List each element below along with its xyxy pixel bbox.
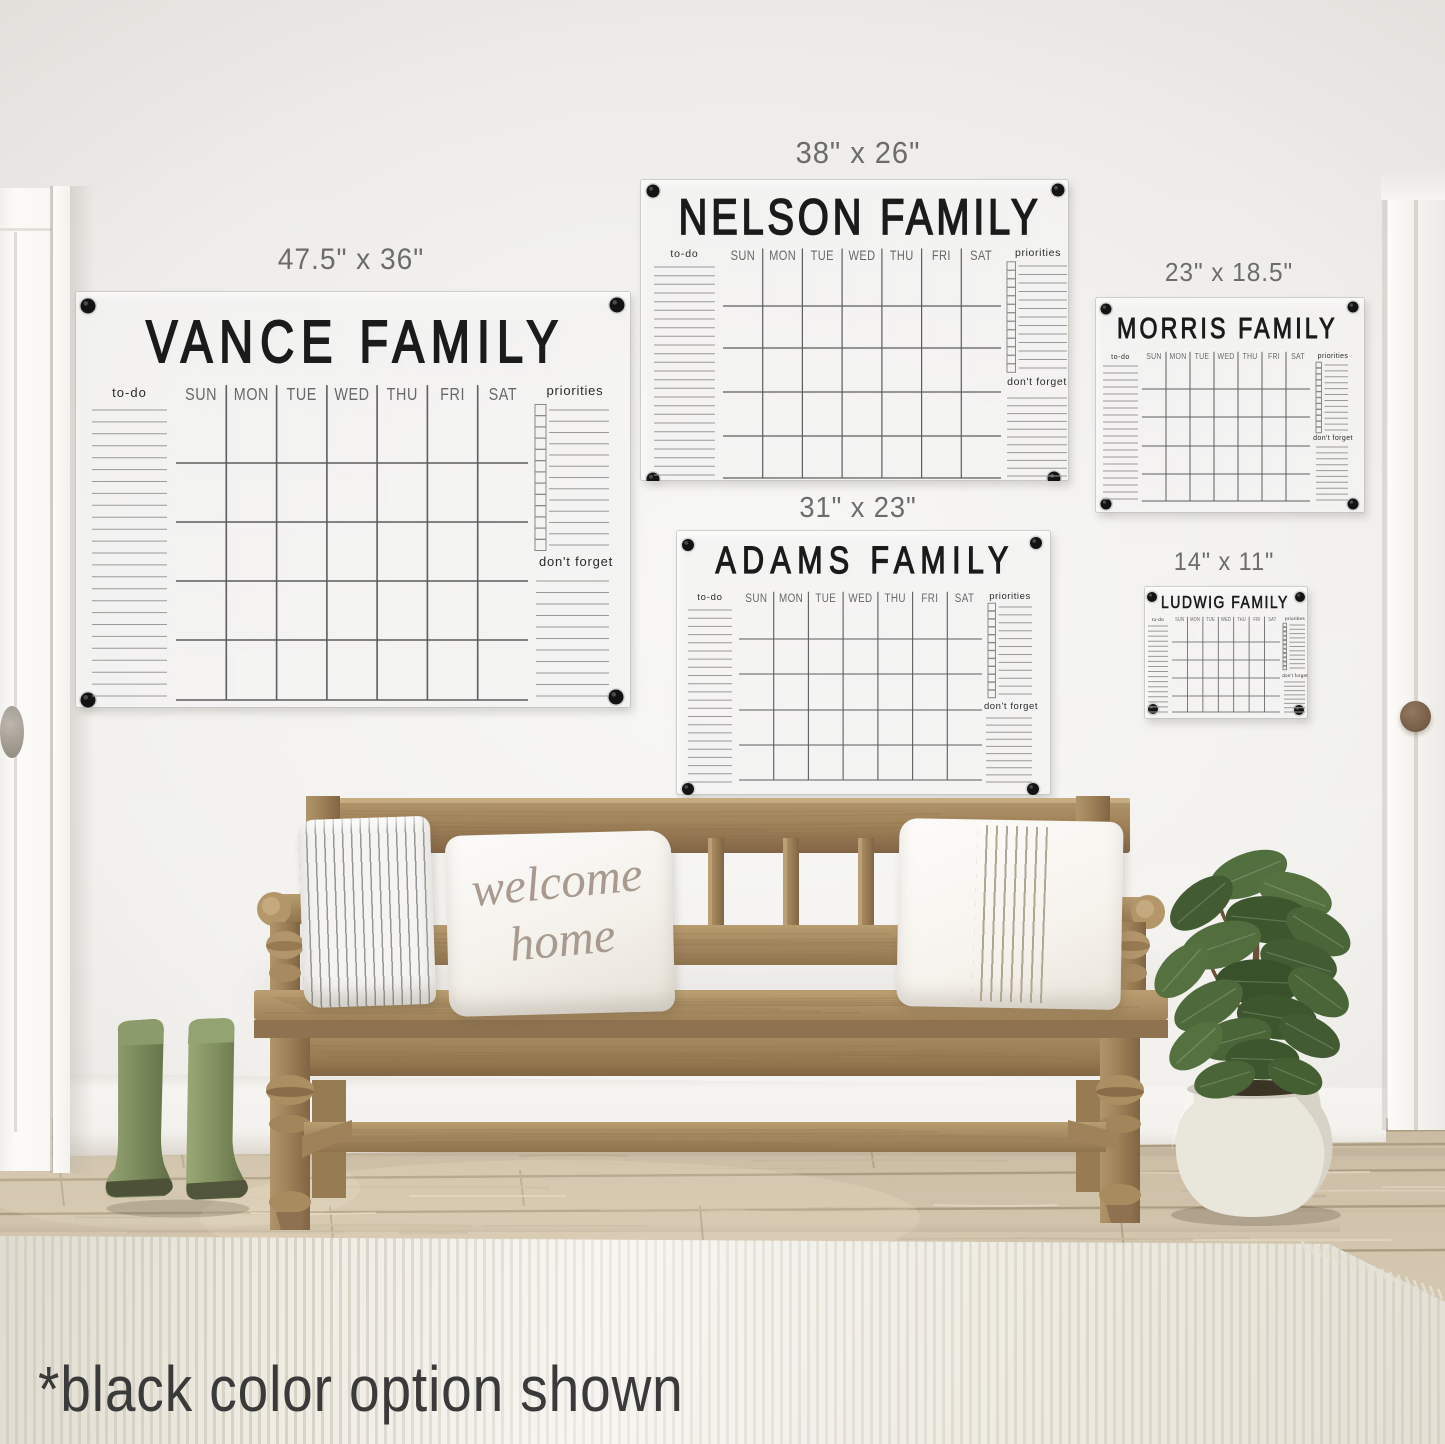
svg-text:priorities: priorities <box>1285 616 1305 621</box>
svg-text:don't forget: don't forget <box>539 554 613 569</box>
svg-text:SUN: SUN <box>731 248 756 263</box>
svg-text:SUN: SUN <box>1146 351 1161 361</box>
svg-text:THU: THU <box>890 248 914 263</box>
svg-text:don't forget: don't forget <box>1313 435 1353 442</box>
svg-text:NELSON FAMILY: NELSON FAMILY <box>679 189 1038 245</box>
svg-text:to-do: to-do <box>1111 354 1130 361</box>
svg-text:SAT: SAT <box>489 386 518 405</box>
svg-text:MON: MON <box>234 386 269 405</box>
svg-text:WED: WED <box>1218 351 1235 361</box>
svg-text:WED: WED <box>334 386 369 405</box>
svg-text:TUE: TUE <box>815 592 836 605</box>
svg-text:TUE: TUE <box>1195 351 1210 361</box>
svg-text:TUE: TUE <box>811 248 834 263</box>
svg-text:don't forget: don't forget <box>1007 376 1067 388</box>
svg-text:FRI: FRI <box>1268 351 1280 361</box>
svg-text:SUN: SUN <box>745 592 767 605</box>
svg-text:THU: THU <box>1237 617 1246 622</box>
svg-text:to-do: to-do <box>112 385 147 400</box>
svg-text:priorities: priorities <box>989 591 1031 602</box>
svg-text:MON: MON <box>1190 617 1200 622</box>
svg-text:FRI: FRI <box>1253 617 1260 622</box>
svg-text:SAT: SAT <box>970 248 992 263</box>
svg-text:THU: THU <box>884 592 905 605</box>
svg-text:to-do: to-do <box>670 248 698 260</box>
svg-text:TUE: TUE <box>286 386 316 405</box>
svg-text:priorities: priorities <box>1318 353 1349 360</box>
svg-text:priorities: priorities <box>1015 247 1061 259</box>
svg-text:TUE: TUE <box>1206 617 1215 622</box>
svg-text:MON: MON <box>1170 351 1187 361</box>
svg-text:to-do: to-do <box>697 592 722 603</box>
svg-text:SAT: SAT <box>955 592 975 605</box>
svg-text:don't forget: don't forget <box>984 701 1038 712</box>
svg-text:THU: THU <box>387 386 418 405</box>
svg-text:priorities: priorities <box>547 383 604 398</box>
svg-text:SUN: SUN <box>1175 617 1184 622</box>
svg-text:THU: THU <box>1242 351 1257 361</box>
svg-text:don't forget: don't forget <box>1282 673 1308 678</box>
svg-text:SUN: SUN <box>185 386 217 405</box>
svg-text:VANCE FAMILY: VANCE FAMILY <box>146 310 558 375</box>
svg-text:SAT: SAT <box>1268 617 1276 622</box>
svg-text:SAT: SAT <box>1291 351 1305 361</box>
svg-text:WED: WED <box>848 592 872 605</box>
svg-text:FRI: FRI <box>932 248 951 263</box>
svg-text:MON: MON <box>779 592 803 605</box>
svg-text:MON: MON <box>769 248 796 263</box>
svg-text:FRI: FRI <box>921 592 938 605</box>
svg-text:FRI: FRI <box>440 386 465 405</box>
svg-text:to-do: to-do <box>1152 617 1164 622</box>
svg-text:WED: WED <box>848 248 875 263</box>
svg-text:WED: WED <box>1221 617 1232 622</box>
